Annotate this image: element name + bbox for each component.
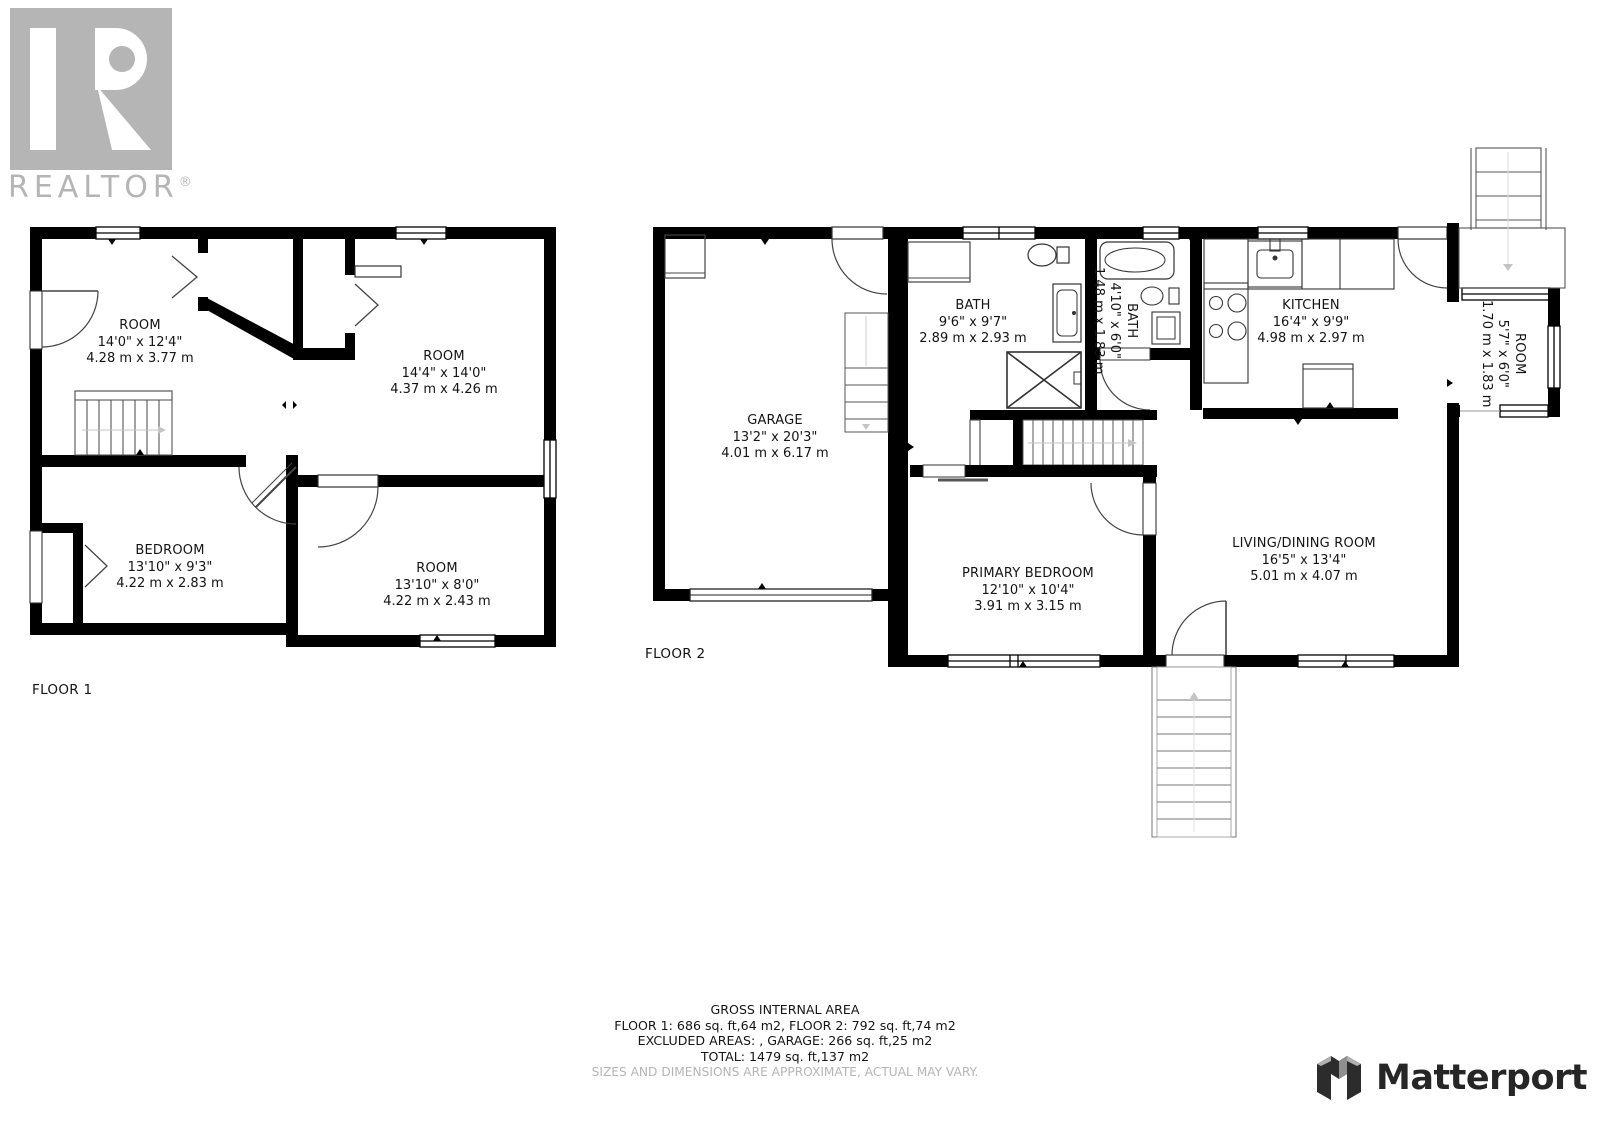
summary-title: GROSS INTERNAL AREA <box>385 1002 1185 1018</box>
room-dim-imperial: 16'4" x 9'9" <box>1191 315 1431 332</box>
room-dim-metric: 4.98 m x 2.97 m <box>1191 331 1431 348</box>
deck-stairs <box>1471 148 1546 264</box>
room-dim-metric: 4.22 m x 2.83 m <box>50 576 290 593</box>
room-dim-imperial: 14'0" x 12'4" <box>20 335 260 352</box>
room-name: KITCHEN <box>1191 298 1431 315</box>
kitchen-island <box>1303 364 1353 408</box>
room-name: BEDROOM <box>50 543 290 560</box>
room-dim-metric: 2.89 m x 2.93 m <box>853 331 1093 348</box>
floor2-mid-stairs <box>1023 420 1143 465</box>
floorplan-page: REALTOR® <box>0 0 1600 1131</box>
room-name: LIVING/DINING ROOM <box>1184 536 1424 553</box>
room-dim-metric: 3.91 m x 3.15 m <box>908 599 1148 616</box>
room-label-f2-bath-small: BATH 4'10" x 6'0" 1.48 m x 1.83 m <box>1089 236 1139 406</box>
room-dim-metric: 5.01 m x 4.07 m <box>1184 569 1424 586</box>
room-dim-metric: 4.22 m x 2.43 m <box>317 594 557 611</box>
summary-total-area: TOTAL: 1479 sq. ft,137 m2 <box>385 1049 1185 1065</box>
room-label-f2-bath: BATH 9'6" x 9'7" 2.89 m x 2.93 m <box>853 298 1093 348</box>
summary-disclaimer: SIZES AND DIMENSIONS ARE APPROXIMATE, AC… <box>385 1065 1185 1081</box>
room-name: GARAGE <box>655 413 895 430</box>
room-dim-imperial: 9'6" x 9'7" <box>853 315 1093 332</box>
room-dim-metric: 1.70 m x 1.83 m <box>1477 269 1494 439</box>
floor1-tag: FLOOR 1 <box>32 682 92 698</box>
room-label-f2-primary-bedroom: PRIMARY BEDROOM 12'10" x 10'4" 3.91 m x … <box>908 566 1148 616</box>
matterport-wordmark: Matterport <box>1376 1058 1587 1098</box>
kitchen-counter <box>1204 239 1394 289</box>
room-label-f1-room2: ROOM 14'4" x 14'0" 4.37 m x 4.26 m <box>324 349 564 399</box>
room-label-f2-kitchen: KITCHEN 16'4" x 9'9" 4.98 m x 2.97 m <box>1191 298 1431 348</box>
floor1-stairs <box>75 391 172 455</box>
room-dim-imperial: 16'5" x 13'4" <box>1184 553 1424 570</box>
room-dim-imperial: 13'10" x 9'3" <box>50 560 290 577</box>
room-dim-imperial: 5'7" x 6'0" <box>1494 269 1511 439</box>
room-name: ROOM <box>317 561 557 578</box>
room-label-f1-room3: ROOM 13'10" x 8'0" 4.22 m x 2.43 m <box>317 561 557 611</box>
room-dim-imperial: 4'10" x 6'0" <box>1106 236 1123 406</box>
summary-floor-areas: FLOOR 1: 686 sq. ft,64 m2, FLOOR 2: 792 … <box>385 1018 1185 1034</box>
room-dim-imperial: 13'2" x 20'3" <box>655 430 895 447</box>
room-name: ROOM <box>20 318 260 335</box>
room-label-f1-room1: ROOM 14'0" x 12'4" 4.28 m x 3.77 m <box>20 318 260 368</box>
room-label-f2-garage: GARAGE 13'2" x 20'3" 4.01 m x 6.17 m <box>655 413 895 463</box>
room-dim-imperial: 12'10" x 10'4" <box>908 583 1148 600</box>
room-dim-imperial: 13'10" x 8'0" <box>317 578 557 595</box>
summary-excluded-areas: EXCLUDED AREAS: , GARAGE: 266 sq. ft,25 … <box>385 1033 1185 1049</box>
room-name: BATH <box>1122 236 1139 406</box>
floor2-tag: FLOOR 2 <box>645 646 705 662</box>
matterport-logo: Matterport <box>1316 1055 1587 1101</box>
room-name: BATH <box>853 298 1093 315</box>
room-dim-metric: 4.01 m x 6.17 m <box>655 446 895 463</box>
room-label-f1-bedroom: BEDROOM 13'10" x 9'3" 4.22 m x 2.83 m <box>50 543 290 593</box>
area-summary: GROSS INTERNAL AREA FLOOR 1: 686 sq. ft,… <box>385 1002 1185 1081</box>
room-dim-metric: 4.37 m x 4.26 m <box>324 382 564 399</box>
room-dim-metric: 4.28 m x 3.77 m <box>20 351 260 368</box>
room-label-f2-living-dining: LIVING/DINING ROOM 16'5" x 13'4" 5.01 m … <box>1184 536 1424 586</box>
shower <box>1007 352 1081 408</box>
room-label-f2-room: ROOM 5'7" x 6'0" 1.70 m x 1.83 m <box>1477 269 1527 439</box>
room-dim-imperial: 14'4" x 14'0" <box>324 366 564 383</box>
room-dim-metric: 1.48 m x 1.83 m <box>1089 236 1106 406</box>
room-name: PRIMARY BEDROOM <box>908 566 1148 583</box>
room-name: ROOM <box>324 349 564 366</box>
matterport-m-icon <box>1316 1055 1362 1101</box>
room-name: ROOM <box>1510 269 1527 439</box>
